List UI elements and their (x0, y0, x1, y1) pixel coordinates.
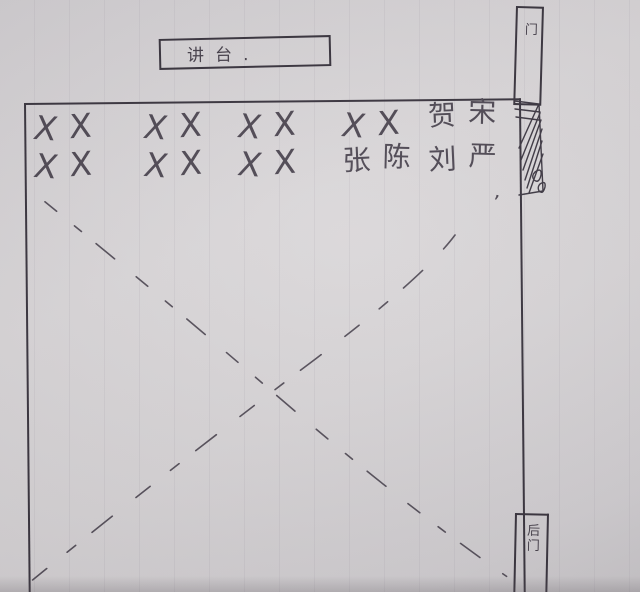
paper-photo: 讲台. 门 XXXXXXXX贺宋XXXXXX张陈刘严 , 后门 (0, 0, 640, 592)
classroom-outline: XXXXXXXX贺宋XXXXXX张陈刘严 , (24, 98, 526, 592)
podium-label: 讲台. (187, 40, 260, 66)
dashed-line-bltr (29, 214, 470, 580)
scribbled-door-patch (511, 96, 551, 200)
podium-box: 讲台. (159, 35, 332, 70)
front-door: 门 (513, 6, 544, 106)
dashed-cross-lines (26, 100, 524, 592)
back-door-label: 后门 (524, 523, 539, 592)
front-door-label: 门 (521, 22, 536, 103)
back-door: 后门 (513, 513, 549, 592)
